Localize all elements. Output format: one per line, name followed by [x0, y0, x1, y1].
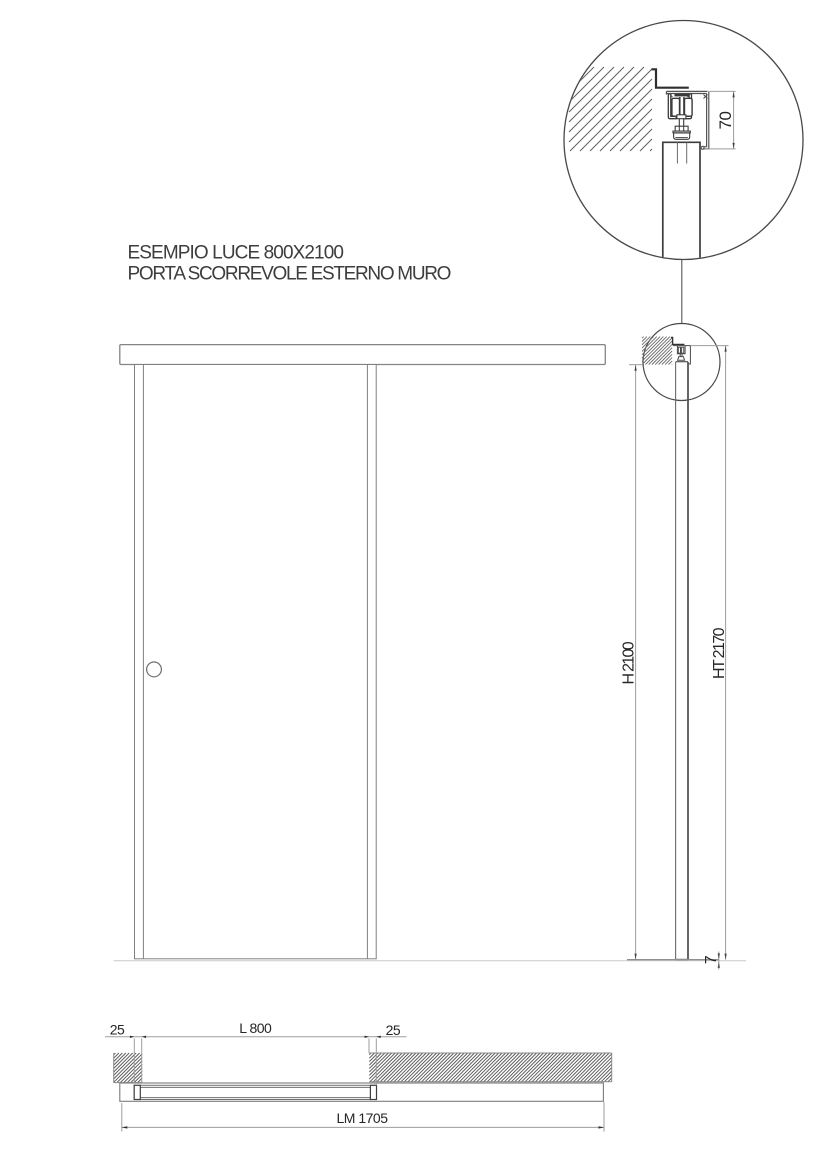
svg-text:H 2100: H 2100 [621, 641, 638, 684]
svg-text:HT 2170: HT 2170 [711, 627, 728, 679]
svg-text:70: 70 [716, 112, 735, 130]
svg-text:L 800: L 800 [239, 1020, 272, 1036]
svg-text:7: 7 [703, 955, 720, 964]
svg-text:25: 25 [386, 1022, 401, 1038]
svg-text:LM 1705: LM 1705 [337, 1110, 389, 1126]
svg-text:PORTA SCORREVOLE ESTERNO MURO: PORTA SCORREVOLE ESTERNO MURO [128, 263, 451, 284]
svg-text:25: 25 [110, 1022, 125, 1038]
svg-text:ESEMPIO LUCE 800X2100: ESEMPIO LUCE 800X2100 [128, 243, 344, 264]
